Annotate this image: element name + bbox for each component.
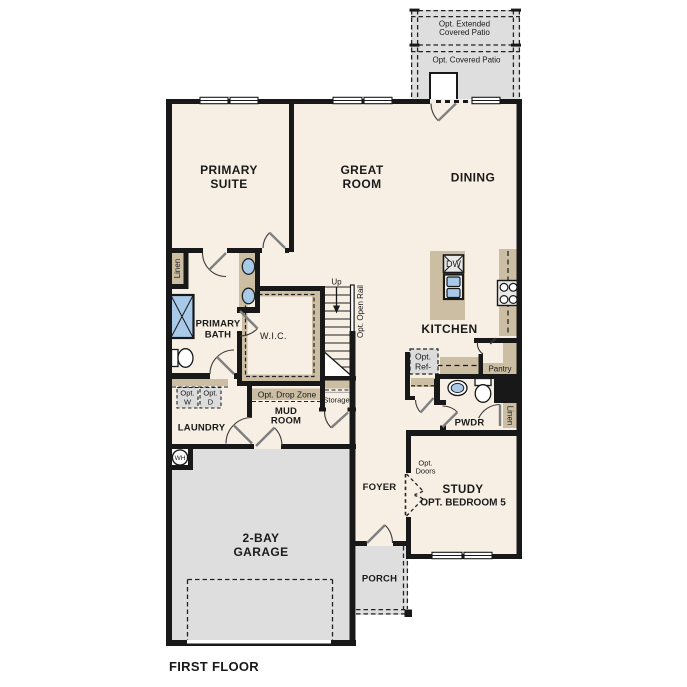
- svg-text:DINING: DINING: [451, 171, 495, 185]
- svg-text:Storage: Storage: [323, 396, 349, 405]
- svg-text:W.I.C.: W.I.C.: [260, 331, 287, 341]
- svg-text:GREAT: GREAT: [340, 163, 383, 177]
- svg-text:SUITE: SUITE: [210, 177, 247, 191]
- svg-text:DW: DW: [446, 259, 461, 269]
- svg-text:FIRST FLOOR: FIRST FLOOR: [169, 659, 259, 674]
- svg-text:BATH: BATH: [205, 330, 231, 341]
- svg-text:Linen: Linen: [173, 259, 182, 279]
- svg-text:Doors: Doors: [415, 467, 435, 476]
- svg-text:2-BAY: 2-BAY: [243, 531, 280, 545]
- svg-text:Opt.: Opt.: [180, 389, 194, 398]
- svg-text:WH: WH: [175, 455, 186, 462]
- svg-text:PWDR: PWDR: [455, 418, 485, 429]
- svg-text:KITCHEN: KITCHEN: [421, 322, 477, 336]
- svg-text:Covered Patio: Covered Patio: [439, 28, 490, 37]
- svg-text:GARAGE: GARAGE: [233, 545, 288, 559]
- svg-text:W: W: [184, 398, 192, 407]
- svg-text:FOYER: FOYER: [363, 482, 397, 493]
- svg-text:Opt. Open Rail: Opt. Open Rail: [356, 285, 365, 338]
- svg-text:STUDY: STUDY: [443, 484, 484, 496]
- svg-text:LAUNDRY: LAUNDRY: [178, 423, 226, 434]
- svg-text:D: D: [208, 398, 214, 407]
- svg-text:ROOM: ROOM: [271, 416, 301, 427]
- svg-text:Opt. Drop Zone: Opt. Drop Zone: [258, 390, 317, 400]
- svg-text:PORCH: PORCH: [362, 574, 397, 585]
- svg-text:Opt.: Opt.: [415, 352, 431, 362]
- svg-text:Pantry: Pantry: [488, 365, 511, 374]
- svg-text:PRIMARY: PRIMARY: [200, 163, 258, 177]
- svg-text:ROOM: ROOM: [343, 177, 382, 191]
- svg-text:PRIMARY: PRIMARY: [196, 319, 241, 330]
- svg-text:Linen: Linen: [506, 406, 515, 426]
- svg-text:Ref-: Ref-: [415, 362, 431, 372]
- svg-text:OPT. BEDROOM 5: OPT. BEDROOM 5: [420, 498, 506, 509]
- svg-text:Opt. Covered Patio: Opt. Covered Patio: [432, 56, 501, 65]
- svg-text:Up: Up: [331, 278, 342, 287]
- svg-text:Opt.: Opt.: [203, 389, 217, 398]
